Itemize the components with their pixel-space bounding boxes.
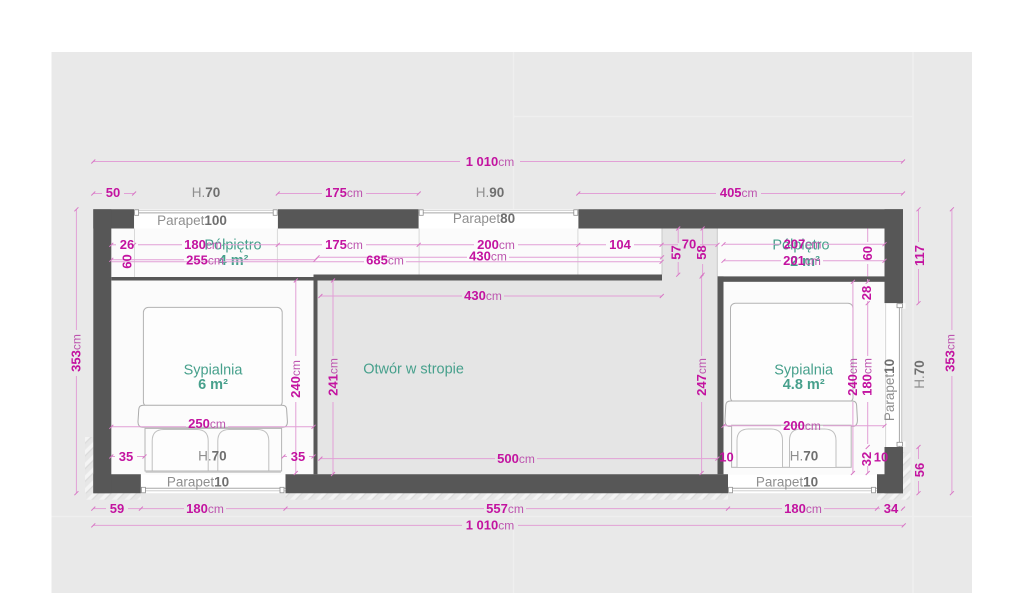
svg-text:175cm: 175cm — [325, 237, 363, 252]
svg-text:557cm: 557cm — [486, 501, 524, 516]
svg-text:4.8 m²: 4.8 m² — [783, 377, 825, 393]
svg-text:H.90: H.90 — [476, 185, 505, 200]
svg-text:35: 35 — [119, 449, 133, 464]
svg-text:250cm: 250cm — [188, 416, 226, 431]
svg-text:240cm: 240cm — [288, 360, 303, 398]
svg-text:175cm: 175cm — [325, 185, 363, 200]
svg-text:180cm: 180cm — [184, 237, 222, 252]
svg-text:50: 50 — [106, 185, 120, 200]
svg-text:207cm: 207cm — [784, 237, 822, 252]
svg-text:H.70: H.70 — [790, 449, 819, 464]
svg-text:200cm: 200cm — [783, 418, 821, 433]
svg-text:430cm: 430cm — [469, 249, 507, 264]
svg-text:35: 35 — [291, 449, 305, 464]
svg-text:353cm: 353cm — [942, 334, 957, 372]
svg-text:26: 26 — [120, 237, 134, 252]
svg-text:685cm: 685cm — [366, 252, 404, 267]
svg-text:180cm: 180cm — [186, 501, 224, 516]
svg-text:117: 117 — [912, 245, 927, 266]
svg-text:6 m²: 6 m² — [198, 377, 228, 393]
svg-text:Parapet100: Parapet100 — [157, 213, 227, 228]
svg-text:Otwór w stropie: Otwór w stropie — [363, 362, 464, 378]
svg-text:Parapet80: Parapet80 — [453, 211, 515, 226]
svg-text:405cm: 405cm — [720, 185, 758, 200]
svg-text:34: 34 — [884, 501, 899, 516]
svg-text:1 010cm: 1 010cm — [466, 518, 515, 533]
svg-text:60: 60 — [860, 246, 875, 260]
svg-text:60: 60 — [119, 254, 134, 268]
svg-text:1 010cm: 1 010cm — [466, 154, 515, 169]
svg-text:Sypialnia: Sypialnia — [184, 362, 244, 378]
svg-text:10: 10 — [874, 449, 888, 464]
svg-text:H.70: H.70 — [198, 449, 227, 464]
svg-text:Parapet10: Parapet10 — [167, 474, 229, 489]
svg-text:10: 10 — [719, 449, 733, 464]
svg-text:430cm: 430cm — [464, 288, 502, 303]
svg-text:59: 59 — [110, 501, 124, 516]
svg-text:240cm: 240cm — [845, 358, 860, 396]
svg-text:H.70: H.70 — [912, 360, 927, 389]
svg-text:56: 56 — [912, 463, 927, 477]
svg-text:255cm: 255cm — [186, 253, 224, 268]
svg-text:H.70: H.70 — [192, 185, 221, 200]
svg-text:247cm: 247cm — [694, 358, 709, 396]
svg-text:57: 57 — [669, 245, 684, 259]
svg-text:32: 32 — [859, 452, 874, 466]
svg-text:241cm: 241cm — [326, 358, 341, 396]
svg-text:104: 104 — [609, 237, 631, 252]
svg-text:201cm: 201cm — [783, 253, 821, 268]
svg-text:Parapet10: Parapet10 — [882, 359, 897, 421]
svg-text:353cm: 353cm — [69, 334, 84, 372]
svg-text:500cm: 500cm — [497, 451, 535, 466]
svg-text:58: 58 — [694, 245, 709, 259]
svg-text:28: 28 — [859, 286, 874, 300]
svg-text:180cm: 180cm — [859, 358, 874, 396]
svg-text:Parapet10: Parapet10 — [756, 474, 818, 489]
svg-text:180cm: 180cm — [784, 501, 822, 516]
